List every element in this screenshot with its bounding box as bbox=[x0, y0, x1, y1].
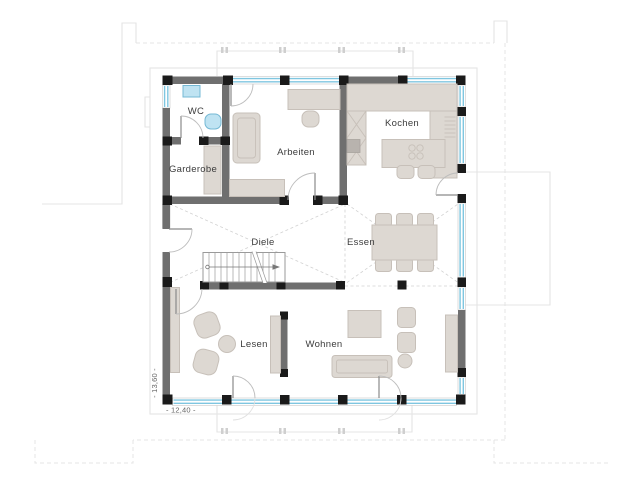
window-right-3 bbox=[458, 203, 466, 278]
roof-outline-right-step bbox=[494, 21, 507, 43]
window-bottom bbox=[173, 398, 457, 406]
wall-right-wohnen bbox=[458, 310, 466, 377]
balcony-outline-top bbox=[217, 51, 413, 76]
desk bbox=[288, 90, 340, 110]
column-freestanding bbox=[398, 281, 407, 290]
oven bbox=[347, 140, 360, 153]
armchair bbox=[398, 308, 416, 328]
wall-top-wc bbox=[166, 77, 228, 85]
room-label-essen: Essen bbox=[347, 237, 375, 248]
bar-stool bbox=[397, 166, 414, 179]
floor-plan-canvas: WC Garderobe Arbeiten Kochen Diele Essen… bbox=[0, 0, 640, 480]
wall-arbeiten-kochen bbox=[340, 84, 348, 204]
bar-stool bbox=[418, 166, 435, 179]
room-label-garderobe: Garderobe bbox=[169, 164, 217, 175]
lounge-chair-large bbox=[348, 311, 381, 338]
roof-overhang-notch bbox=[145, 97, 150, 127]
sideboard bbox=[446, 315, 458, 372]
window-left-wc bbox=[163, 85, 171, 108]
office-sideboard bbox=[230, 180, 285, 197]
wall-arbeiten-diele-left bbox=[170, 197, 288, 205]
window-right-2 bbox=[458, 116, 466, 164]
kitchen-tall-cabinets bbox=[347, 111, 366, 165]
staircase bbox=[203, 252, 285, 284]
railing-marks-bottom bbox=[221, 428, 405, 434]
wall-pier-lesen-wohnen bbox=[281, 312, 288, 377]
terrace-outline-right bbox=[465, 172, 550, 305]
pier-shelf bbox=[271, 316, 281, 373]
room-label-diele: Diele bbox=[251, 237, 274, 248]
room-label-kochen: Kochen bbox=[385, 118, 419, 129]
window-top-right bbox=[405, 77, 458, 85]
room-label-wohnen: Wohnen bbox=[305, 339, 342, 350]
dimension-height: - 13,60 - bbox=[150, 368, 159, 398]
window-right-4 bbox=[458, 287, 466, 310]
desk-chair bbox=[302, 111, 319, 127]
room-label-arbeiten: Arbeiten bbox=[277, 147, 315, 158]
window-right-5 bbox=[458, 377, 466, 395]
wall-left-lower bbox=[163, 252, 171, 398]
washbasin bbox=[183, 86, 200, 98]
dimension-width: - 12,40 - bbox=[166, 406, 196, 415]
terrace-outline-bottom bbox=[217, 403, 412, 432]
bookshelf bbox=[171, 288, 180, 373]
window-right-1 bbox=[458, 85, 466, 107]
room-label-wc: WC bbox=[188, 106, 204, 117]
sofa bbox=[332, 356, 392, 378]
armchair bbox=[398, 333, 416, 353]
dining-table bbox=[372, 225, 437, 260]
roof-outline-bottom-left-step bbox=[35, 438, 133, 463]
kitchen-counter-top bbox=[347, 84, 457, 111]
coffee-table-round bbox=[398, 354, 412, 368]
roof-outline-bottom-right-step bbox=[494, 440, 610, 463]
room-label-lesen: Lesen bbox=[240, 339, 267, 350]
floor-plan-drawing: WC Garderobe Arbeiten Kochen Diele Essen… bbox=[0, 0, 640, 480]
toilet bbox=[205, 114, 221, 129]
side-table-round bbox=[219, 336, 236, 353]
railing-marks-top bbox=[221, 47, 405, 53]
roof-outline-left bbox=[42, 23, 136, 204]
wall-top-kochen bbox=[344, 77, 405, 85]
